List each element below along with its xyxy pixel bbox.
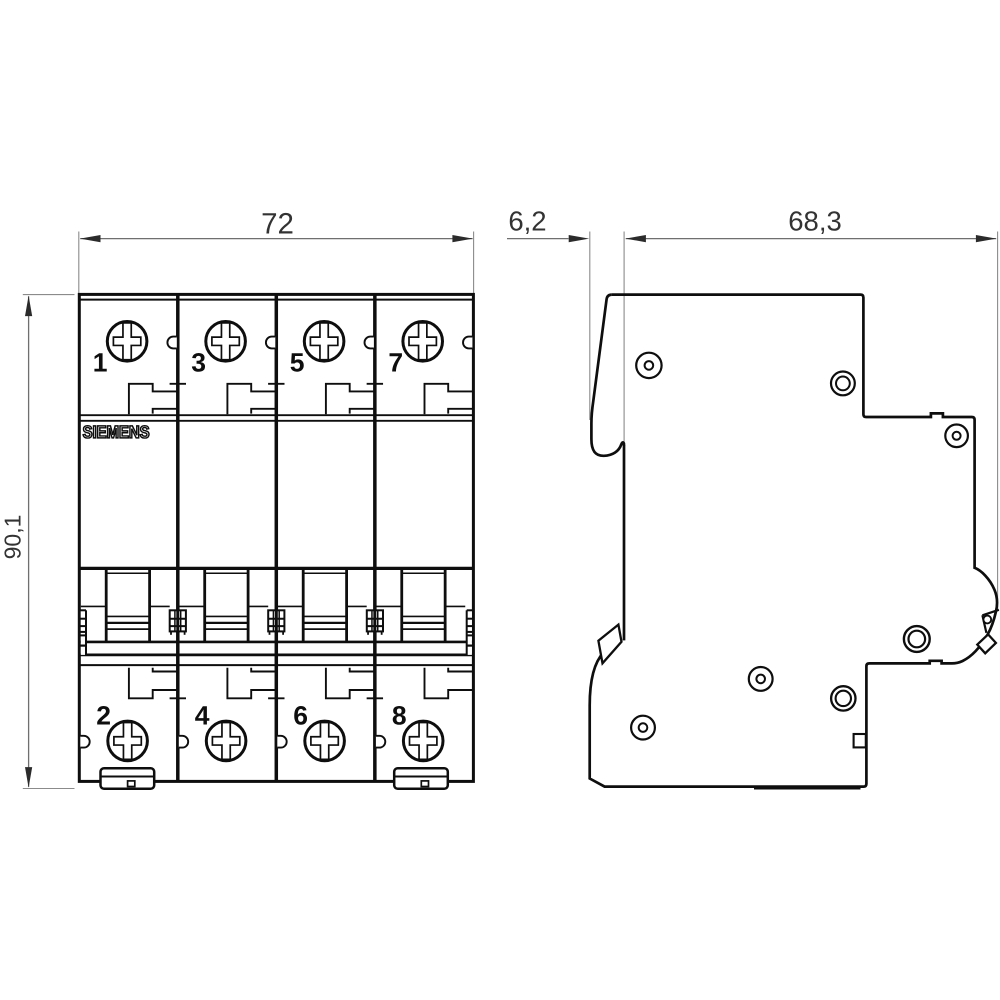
svg-text:1: 1 <box>93 348 108 378</box>
svg-text:2: 2 <box>96 701 111 731</box>
svg-text:6: 6 <box>293 701 308 731</box>
svg-text:8: 8 <box>392 701 407 731</box>
svg-text:5: 5 <box>290 348 305 378</box>
svg-text:68,3: 68,3 <box>788 206 842 237</box>
svg-text:90,1: 90,1 <box>0 515 26 560</box>
svg-text:3: 3 <box>191 348 206 378</box>
svg-text:72: 72 <box>261 208 294 241</box>
svg-text:7: 7 <box>388 348 403 378</box>
svg-text:6,2: 6,2 <box>508 206 546 237</box>
svg-text:4: 4 <box>195 701 210 731</box>
